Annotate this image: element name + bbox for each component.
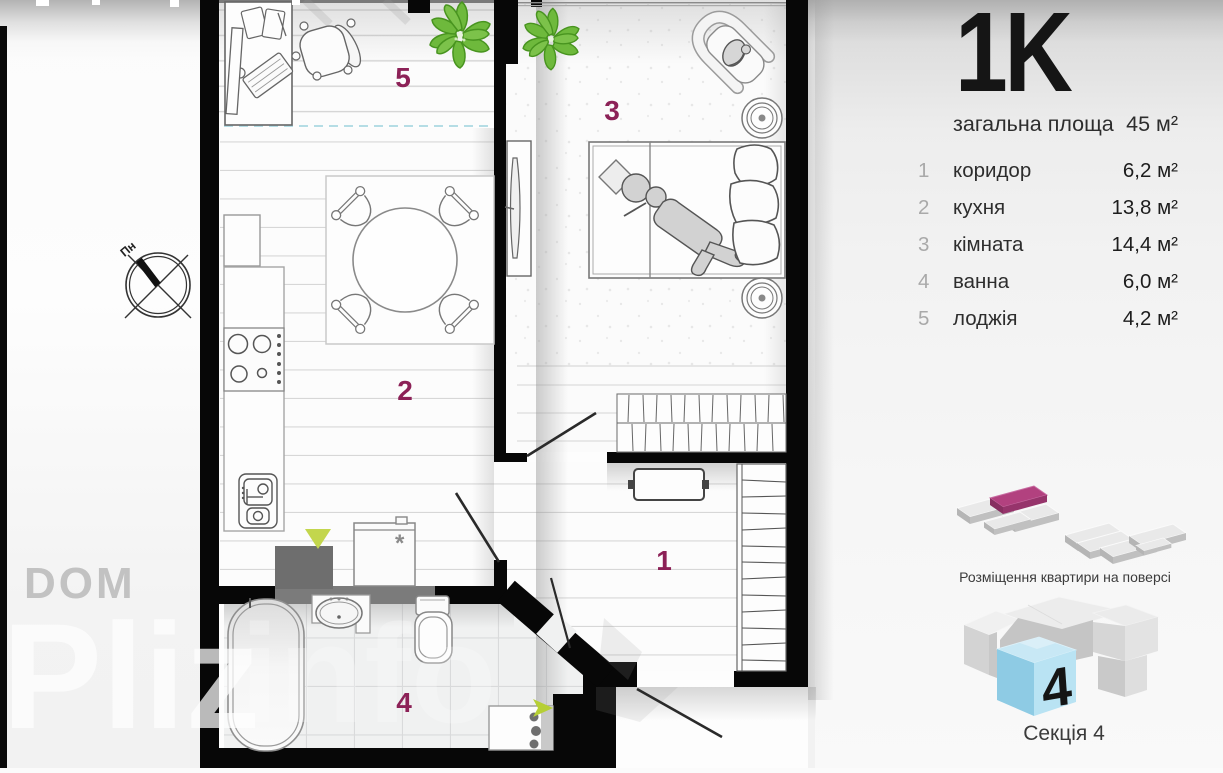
svg-text:1K: 1K — [955, 0, 1073, 116]
svg-text:кімната: кімната — [953, 233, 1024, 256]
svg-text:кухня: кухня — [953, 196, 1005, 219]
svg-text:info: info — [240, 595, 497, 752]
svg-text:3: 3 — [604, 95, 620, 126]
svg-text:загальна площа: загальна площа — [953, 112, 1114, 136]
svg-text:Розміщення квартири на поверсі: Розміщення квартири на поверсі — [959, 569, 1171, 585]
svg-text:ванна: ванна — [953, 270, 1010, 293]
svg-text:6,0 м²: 6,0 м² — [1123, 270, 1178, 293]
svg-text:2: 2 — [918, 196, 929, 219]
svg-text:3: 3 — [918, 233, 929, 256]
svg-text:45 м²: 45 м² — [1126, 112, 1178, 136]
svg-text:14,4 м²: 14,4 м² — [1111, 233, 1178, 256]
svg-text:4,2 м²: 4,2 м² — [1123, 307, 1178, 330]
svg-text:4: 4 — [1040, 655, 1074, 720]
svg-text:Секція 4: Секція 4 — [1023, 722, 1105, 745]
svg-text:Пн: Пн — [117, 239, 138, 260]
svg-text:1: 1 — [656, 545, 672, 576]
svg-text:*: * — [395, 530, 405, 557]
svg-text:2: 2 — [397, 375, 413, 406]
svg-text:Pliz: Pliz — [2, 592, 260, 760]
svg-text:6,2 м²: 6,2 м² — [1123, 159, 1178, 182]
svg-text:5: 5 — [395, 62, 411, 93]
svg-text:коридор: коридор — [953, 159, 1031, 182]
svg-text:4: 4 — [918, 270, 929, 293]
svg-text:лоджія: лоджія — [953, 307, 1017, 330]
svg-text:1: 1 — [918, 159, 929, 182]
svg-text:5: 5 — [918, 307, 929, 330]
svg-text:13,8 м²: 13,8 м² — [1111, 196, 1178, 219]
